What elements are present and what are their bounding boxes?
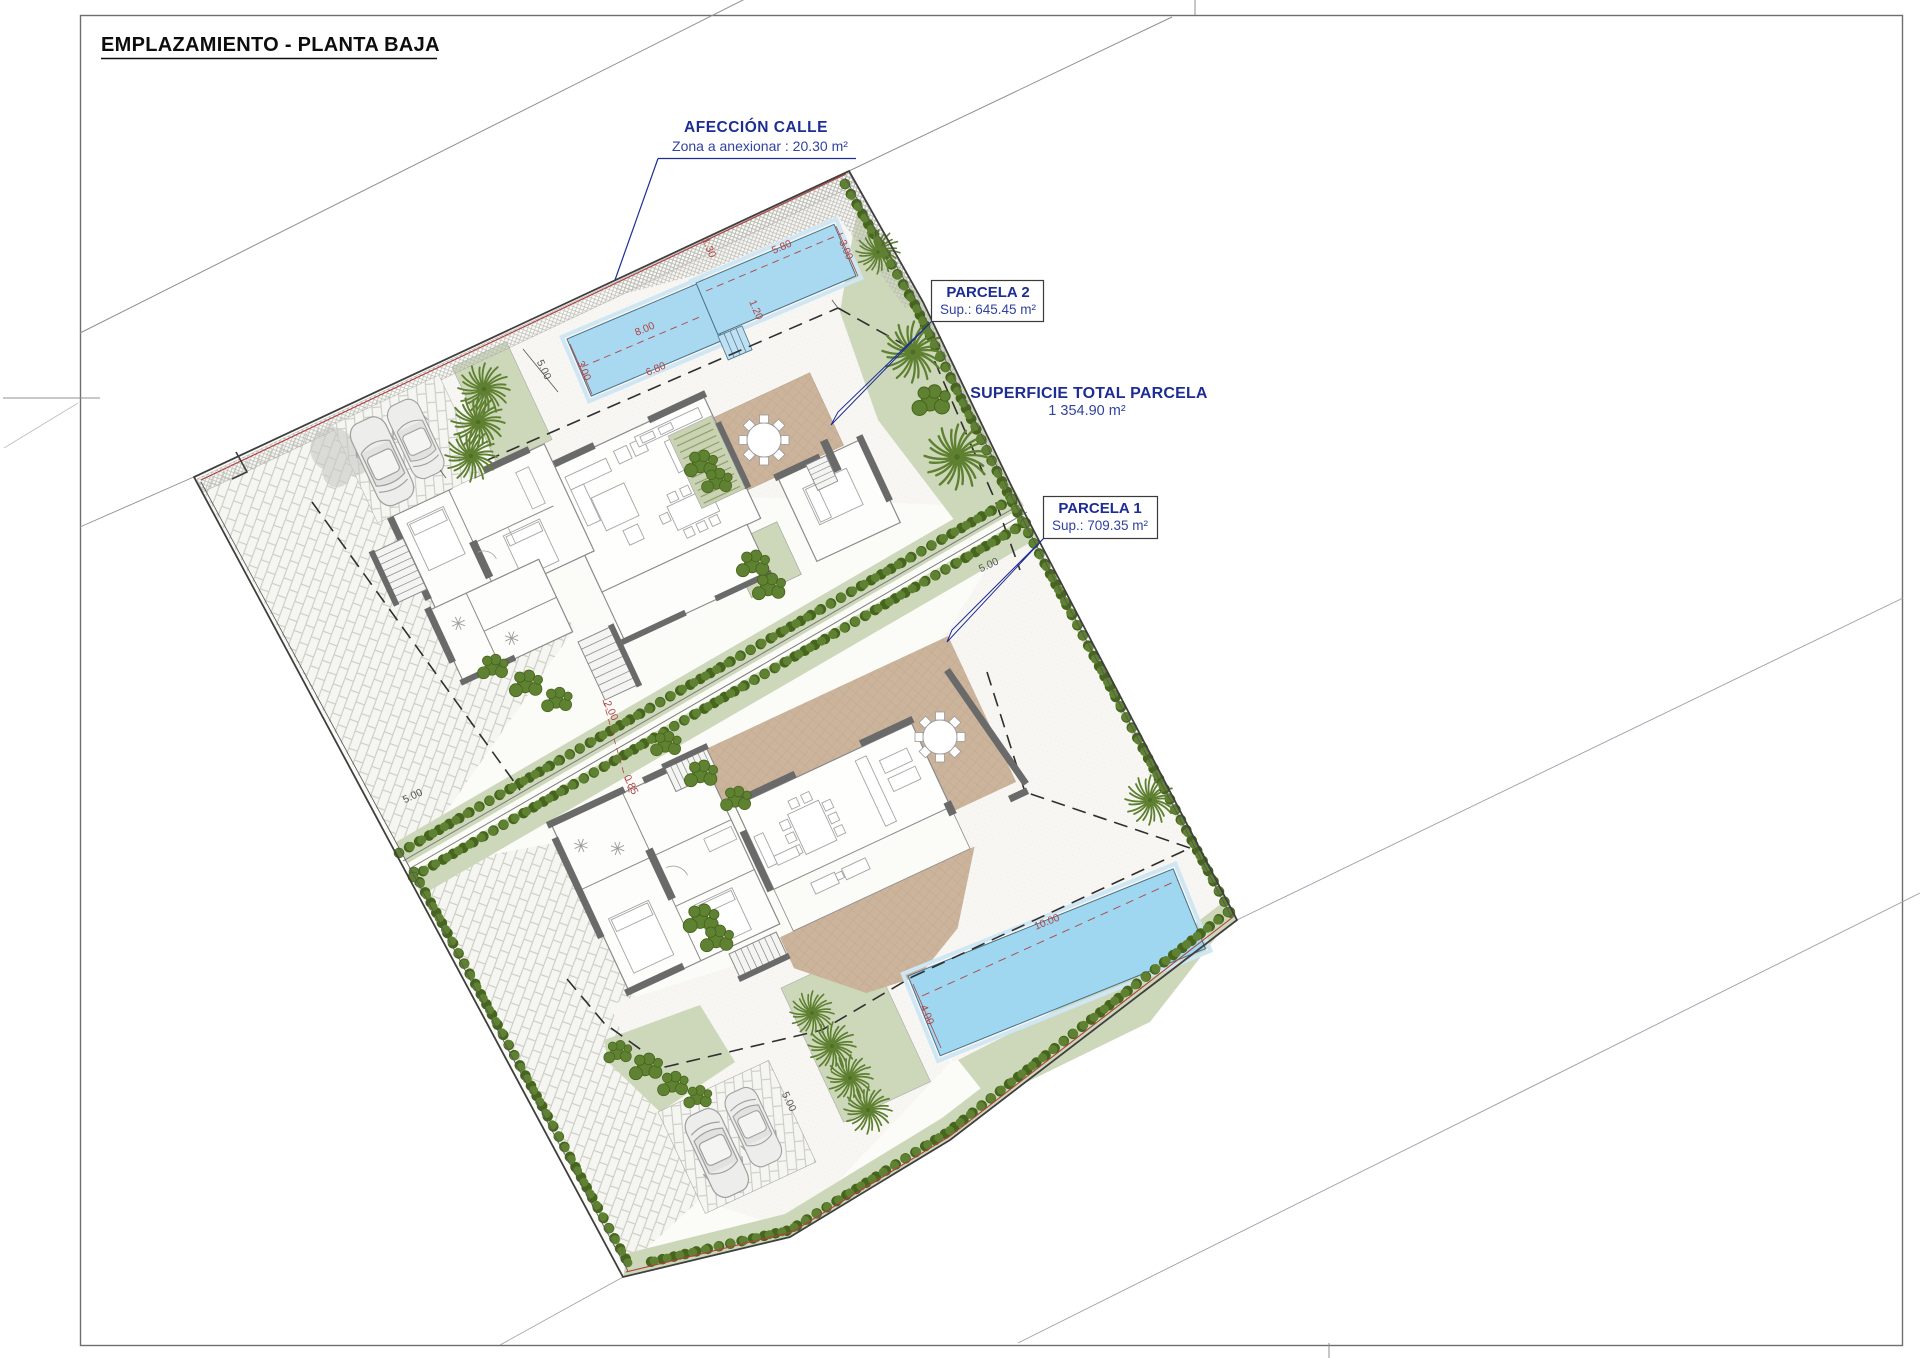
svg-text:1 354.90 m²: 1 354.90 m² — [1048, 403, 1126, 419]
svg-text:SUPERFICIE TOTAL PARCELA: SUPERFICIE TOTAL PARCELA — [970, 385, 1208, 402]
svg-text:AFECCIÓN CALLE: AFECCIÓN CALLE — [684, 118, 828, 136]
svg-text:Sup.: 645.45 m²: Sup.: 645.45 m² — [940, 302, 1037, 317]
svg-text:Sup.: 709.35 m²: Sup.: 709.35 m² — [1052, 518, 1149, 533]
svg-text:PARCELA 1: PARCELA 1 — [1058, 500, 1141, 517]
svg-text:Zona a anexionar : 20.30 m²: Zona a anexionar : 20.30 m² — [672, 138, 848, 154]
svg-text:PARCELA 2: PARCELA 2 — [946, 284, 1029, 301]
svg-text:EMPLAZAMIENTO - PLANTA BAJA: EMPLAZAMIENTO - PLANTA BAJA — [101, 34, 440, 56]
